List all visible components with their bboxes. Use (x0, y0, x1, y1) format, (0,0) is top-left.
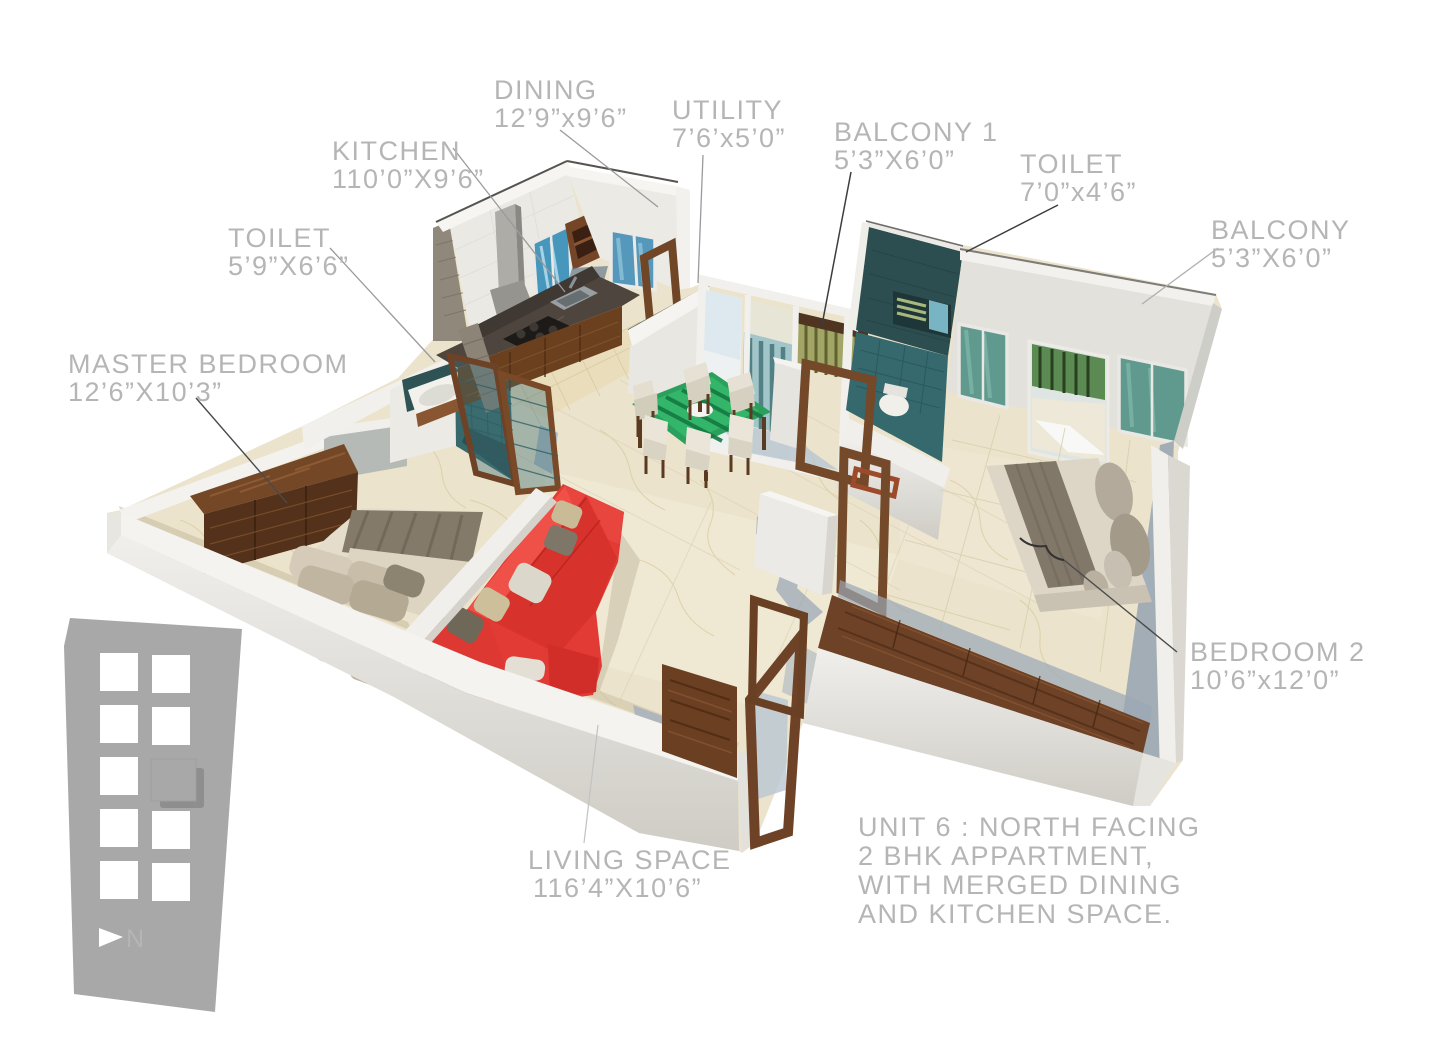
svg-text:MASTER BEDROOM: MASTER BEDROOM (68, 349, 349, 379)
svg-text:N: N (126, 925, 144, 953)
svg-text:7’0”x4’6”: 7’0”x4’6” (1020, 177, 1137, 207)
svg-text:5’3”X6’0”: 5’3”X6’0” (834, 145, 956, 175)
svg-text:10’6”x12’0”: 10’6”x12’0” (1190, 665, 1340, 695)
svg-text:2 BHK APPARTMENT,: 2 BHK APPARTMENT, (858, 841, 1154, 871)
svg-text:DINING: DINING (494, 75, 598, 105)
svg-text:UTILITY: UTILITY (672, 95, 783, 125)
svg-text:TOILET: TOILET (1020, 149, 1123, 179)
svg-text:110’0”X9’6”: 110’0”X9’6” (332, 164, 485, 194)
svg-text:7’6’x5’0”: 7’6’x5’0” (672, 123, 786, 153)
svg-text:UNIT 6 : NORTH FACING: UNIT 6 : NORTH FACING (858, 812, 1201, 842)
svg-text:AND KITCHEN SPACE.: AND KITCHEN SPACE. (858, 899, 1173, 929)
svg-text:12’6”X10’3”: 12’6”X10’3” (68, 377, 223, 407)
svg-text:WITH MERGED DINING: WITH MERGED DINING (858, 870, 1182, 900)
svg-text:KITCHEN: KITCHEN (332, 136, 461, 166)
svg-text:116’4”X10’6”: 116’4”X10’6” (533, 873, 702, 903)
svg-text:BALCONY 1: BALCONY 1 (834, 117, 999, 147)
svg-text:TOILET: TOILET (228, 223, 331, 253)
svg-text:5’3”X6’0”: 5’3”X6’0” (1211, 243, 1333, 273)
svg-text:5’9”X6’6”: 5’9”X6’6” (228, 251, 350, 281)
svg-text:BALCONY: BALCONY (1211, 215, 1351, 245)
svg-text:LIVING SPACE: LIVING SPACE (528, 845, 732, 875)
svg-text:12’9”x9’6”: 12’9”x9’6” (494, 103, 628, 133)
svg-text:BEDROOM 2: BEDROOM 2 (1190, 637, 1366, 667)
